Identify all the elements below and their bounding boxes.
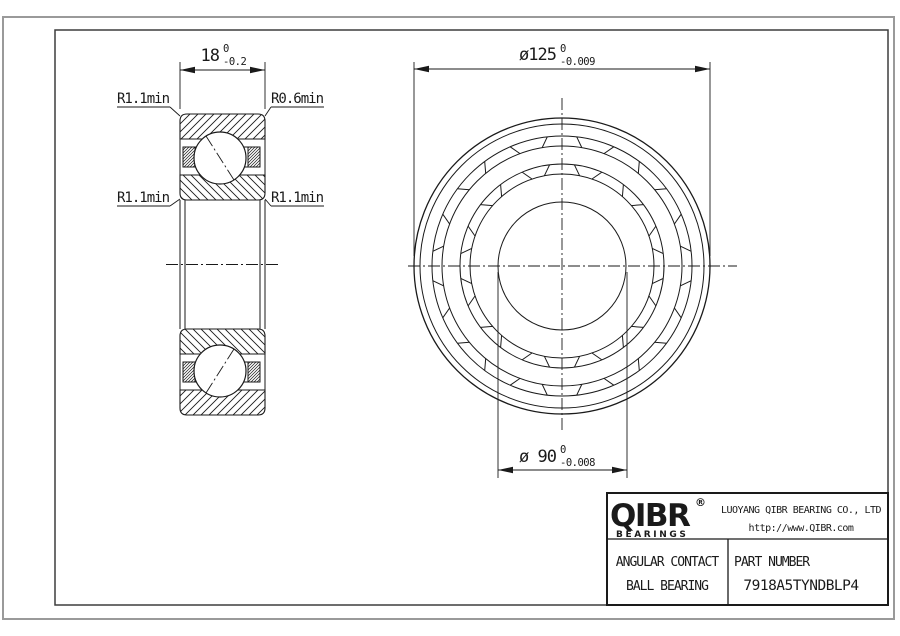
radius-label-mid-left: R1.1min xyxy=(117,190,170,206)
logo-text: QIBR xyxy=(610,498,691,534)
od-tol-lower: -0.009 xyxy=(560,56,595,68)
cage-section xyxy=(248,147,260,167)
company-name: LUOYANG QIBR BEARING CO., LTD xyxy=(721,505,882,516)
radius-label-top-right: R0.6min xyxy=(271,91,324,107)
cage-section xyxy=(183,362,195,382)
logo-subtext: BEARINGS xyxy=(616,530,688,540)
cage-section xyxy=(248,362,260,382)
title-block: QIBR ® BEARINGS LUOYANG QIBR BEARING CO.… xyxy=(607,493,888,605)
od-tol-upper: 0 xyxy=(560,43,566,55)
width-tol-lower: -0.2 xyxy=(223,56,246,68)
registered-trademark-icon: ® xyxy=(695,496,706,509)
part-number-value: 7918A5TYNDBLP4 xyxy=(743,578,859,594)
width-tol-upper: 0 xyxy=(223,43,229,55)
od-value: ø125 xyxy=(519,45,556,65)
bore-tol-upper: 0 xyxy=(560,444,566,456)
bore-value: ø 90 xyxy=(519,447,557,467)
part-number-label: PART NUMBER xyxy=(734,555,810,570)
company-website: http://www.QIBR.com xyxy=(749,523,854,534)
radius-label-top-left: R1.1min xyxy=(117,91,170,107)
bore-tol-lower: -0.008 xyxy=(560,457,595,469)
radius-label-mid-right: R1.1min xyxy=(271,190,324,206)
product-type-line1: ANGULAR CONTACT xyxy=(616,555,720,570)
product-type-line2: BALL BEARING xyxy=(626,579,709,594)
bearing-drawing-canvas: 18 0 -0.2 R1.1min R0.6min R1.1min R1.1mi… xyxy=(0,0,900,636)
width-value: 18 xyxy=(201,46,220,66)
cage-section xyxy=(183,147,195,167)
